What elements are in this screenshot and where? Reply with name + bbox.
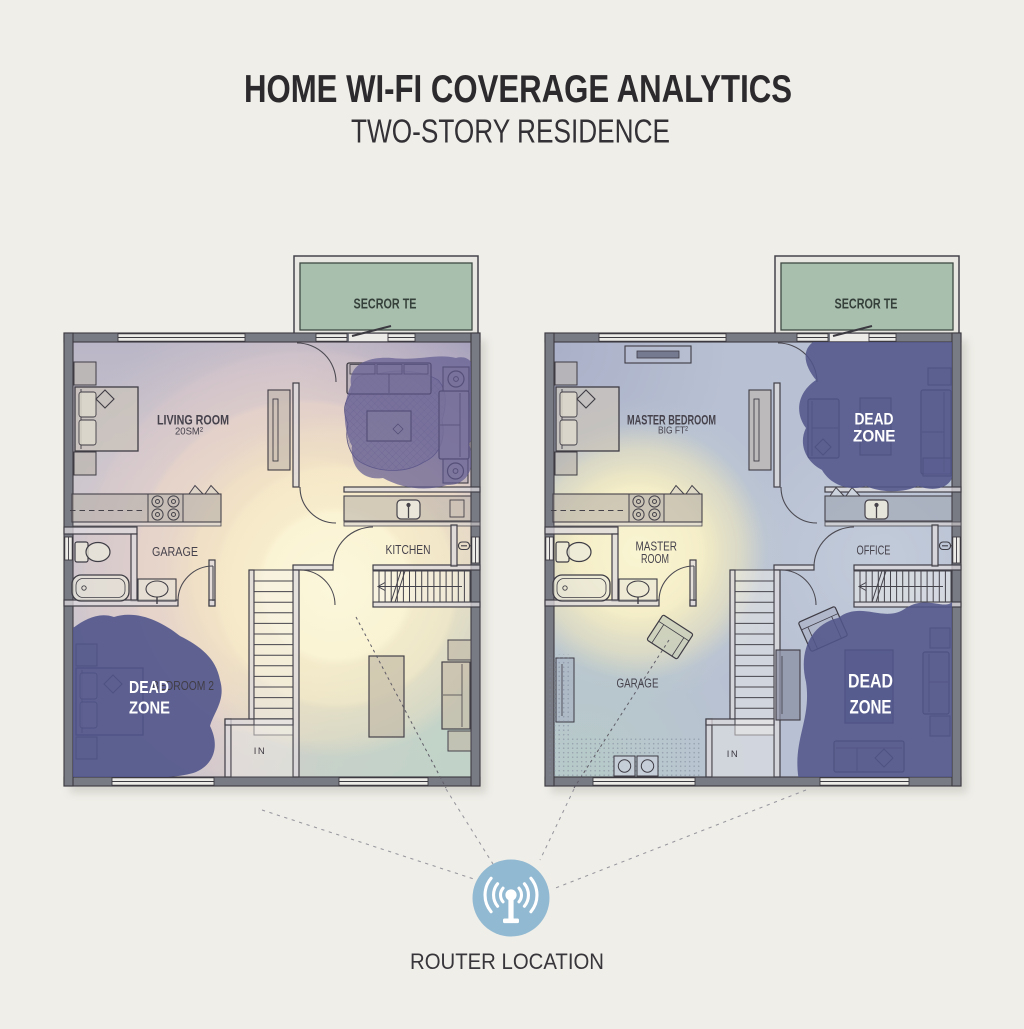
svg-text:DEAD: DEAD <box>129 677 169 697</box>
svg-text:TWO-STORY RESIDENCE: TWO-STORY RESIDENCE <box>351 113 670 150</box>
svg-text:DEAD: DEAD <box>848 672 893 693</box>
svg-text:KITCHEN: KITCHEN <box>386 543 431 557</box>
svg-text:DEAD: DEAD <box>855 411 894 429</box>
svg-text:ROOM: ROOM <box>641 551 669 566</box>
svg-text:20SM²: 20SM² <box>175 427 204 438</box>
svg-text:HOME WI-FI COVERAGE ANALYTICS: HOME WI-FI COVERAGE ANALYTICS <box>244 68 792 111</box>
svg-text:ZONE: ZONE <box>850 698 892 719</box>
svg-text:OFFICE: OFFICE <box>857 544 891 558</box>
svg-text:LIVING ROOM: LIVING ROOM <box>157 412 229 428</box>
svg-text:IN: IN <box>254 746 267 757</box>
svg-text:ROUTER LOCATION: ROUTER LOCATION <box>410 949 604 974</box>
svg-text:GARAGE: GARAGE <box>152 545 198 559</box>
svg-text:BIG FT²: BIG FT² <box>658 426 689 437</box>
svg-text:ZONE: ZONE <box>129 698 170 718</box>
svg-text:ZONE: ZONE <box>853 428 896 446</box>
svg-text:IN: IN <box>727 749 740 760</box>
